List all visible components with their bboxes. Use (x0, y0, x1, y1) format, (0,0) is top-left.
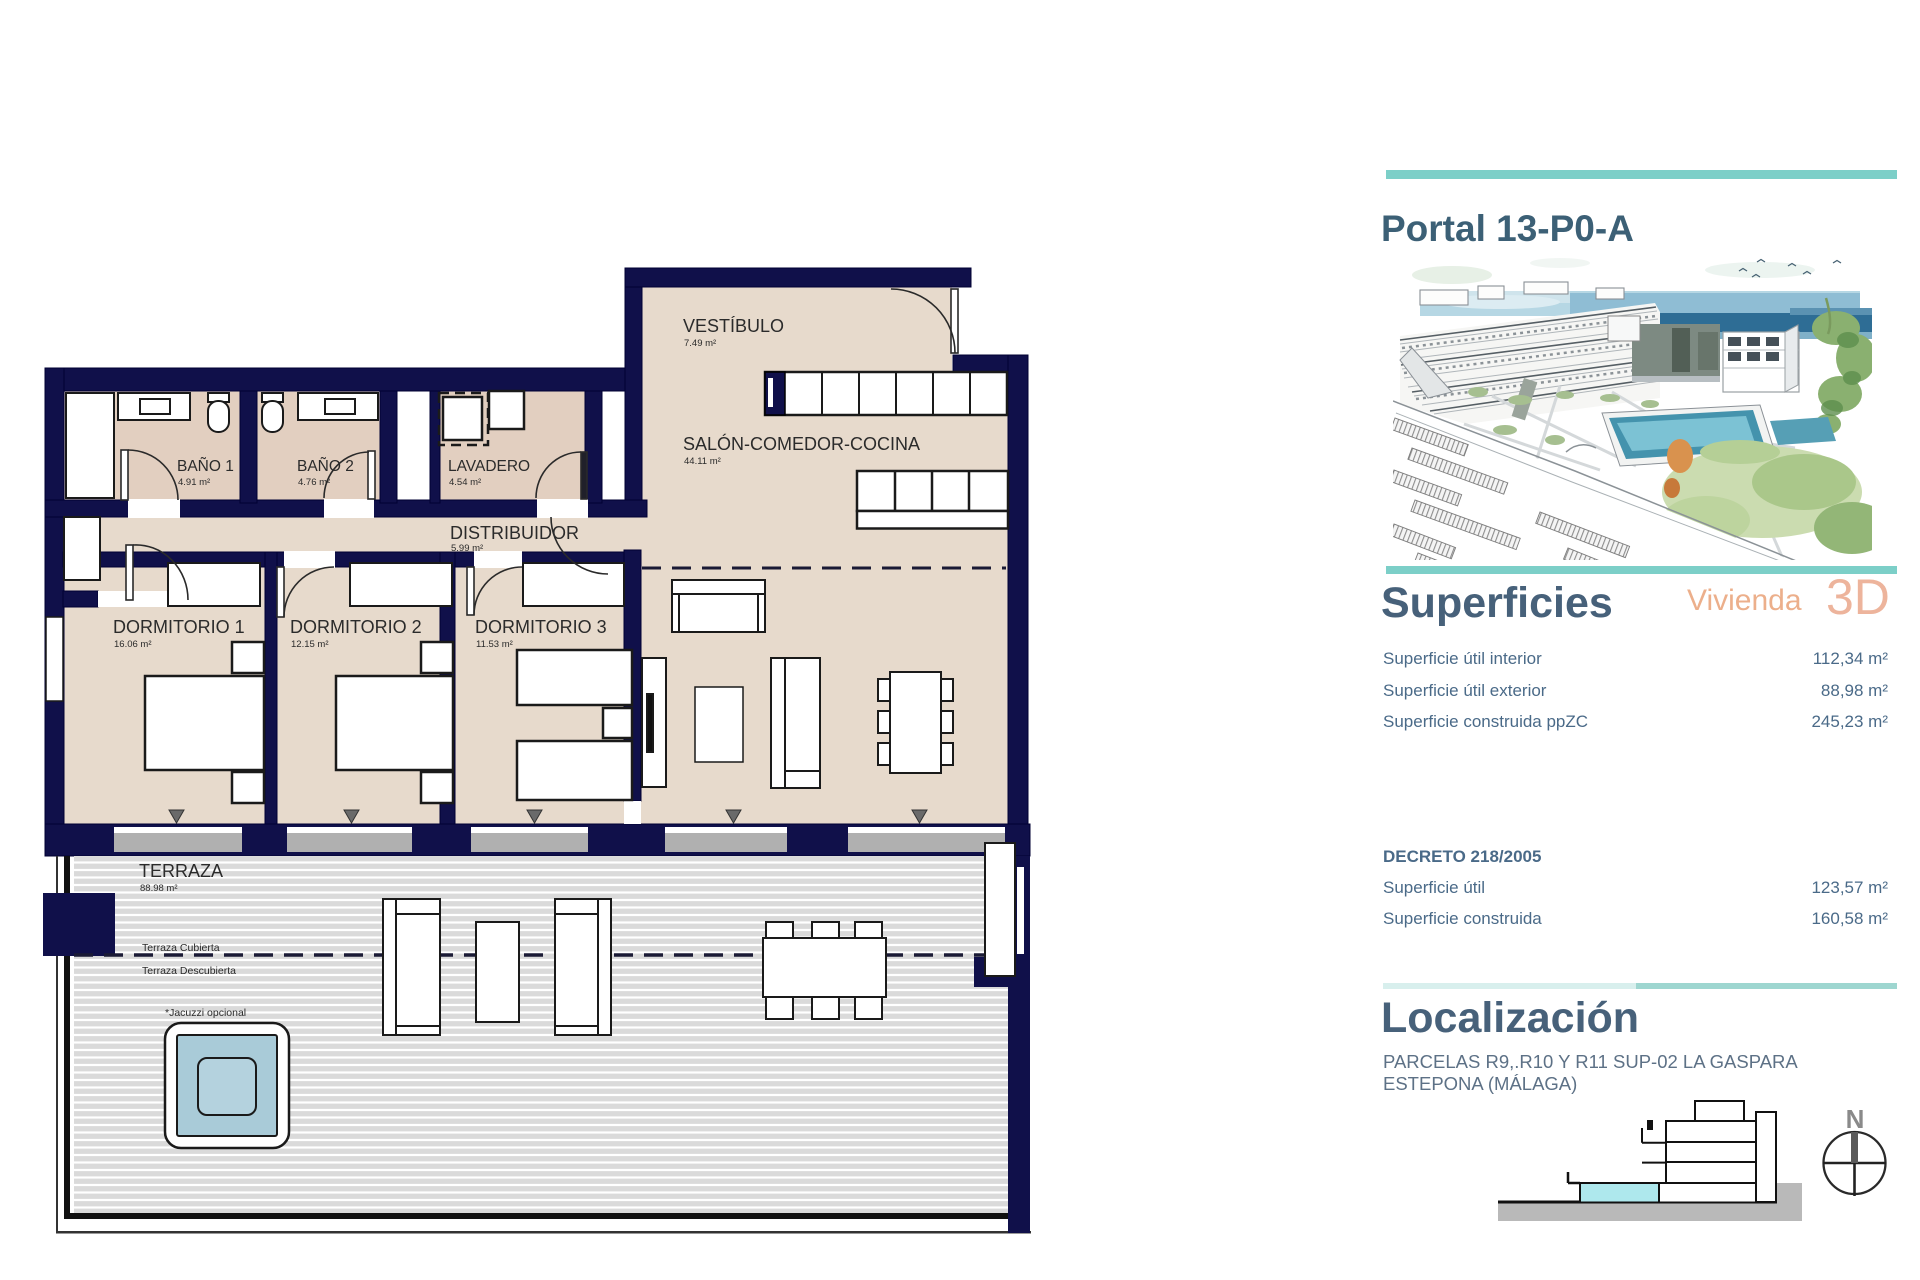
svg-text:Superficie construida ppZC: Superficie construida ppZC (1383, 712, 1588, 731)
svg-text:BAÑO 2: BAÑO 2 (297, 458, 354, 475)
svg-text:*Jacuzzi opcional: *Jacuzzi opcional (165, 1007, 246, 1019)
svg-text:160,58 m²: 160,58 m² (1811, 909, 1888, 928)
svg-text:Terraza Descubierta: Terraza Descubierta (142, 965, 236, 977)
svg-text:TERRAZA: TERRAZA (139, 861, 223, 881)
svg-text:Superficie útil interior: Superficie útil interior (1383, 649, 1542, 668)
svg-text:Vivienda: Vivienda (1687, 584, 1802, 617)
svg-text:ESTEPONA (MÁLAGA): ESTEPONA (MÁLAGA) (1383, 1073, 1577, 1094)
svg-text:Localización: Localización (1381, 994, 1639, 1042)
svg-text:12.15 m²: 12.15 m² (291, 639, 329, 650)
svg-text:N: N (1846, 1104, 1865, 1134)
svg-text:245,23 m²: 245,23 m² (1811, 712, 1888, 731)
svg-text:4.91 m²: 4.91 m² (178, 477, 210, 488)
svg-text:16.06 m²: 16.06 m² (114, 639, 152, 650)
svg-text:5.99 m²: 5.99 m² (451, 543, 483, 554)
svg-text:7.49 m²: 7.49 m² (684, 338, 716, 349)
svg-text:Portal 13-P0-A: Portal 13-P0-A (1381, 208, 1634, 249)
svg-text:Terraza Cubierta: Terraza Cubierta (142, 942, 220, 954)
svg-text:112,34 m²: 112,34 m² (1813, 649, 1889, 668)
svg-text:DORMITORIO 1: DORMITORIO 1 (113, 617, 245, 637)
svg-text:44.11 m²: 44.11 m² (684, 456, 721, 467)
svg-text:SALÓN-COMEDOR-COCINA: SALÓN-COMEDOR-COCINA (683, 433, 920, 454)
svg-text:BAÑO 1: BAÑO 1 (177, 458, 234, 475)
svg-text:11.53 m²: 11.53 m² (476, 639, 513, 650)
svg-text:Superficie construida: Superficie construida (1383, 909, 1542, 928)
svg-text:Superficie útil exterior: Superficie útil exterior (1383, 681, 1547, 700)
svg-text:PARCELAS R9,.R10 Y R11 SUP-02: PARCELAS R9,.R10 Y R11 SUP-02 LA GASPARA (1383, 1051, 1798, 1072)
svg-text:LAVADERO: LAVADERO (448, 458, 530, 475)
svg-text:DORMITORIO 3: DORMITORIO 3 (475, 617, 607, 637)
svg-text:VESTÍBULO: VESTÍBULO (683, 316, 784, 336)
svg-text:123,57 m²: 123,57 m² (1811, 878, 1888, 897)
svg-text:Superficies: Superficies (1381, 579, 1613, 627)
svg-text:88.98 m²: 88.98 m² (140, 883, 178, 894)
svg-text:DISTRIBUIDOR: DISTRIBUIDOR (450, 523, 579, 543)
svg-text:4.76 m²: 4.76 m² (298, 477, 330, 488)
svg-text:Superficie útil: Superficie útil (1383, 878, 1485, 897)
svg-text:3D: 3D (1826, 569, 1890, 625)
svg-text:4.54 m²: 4.54 m² (449, 477, 481, 488)
svg-text:88,98 m²: 88,98 m² (1821, 681, 1888, 700)
svg-text:DORMITORIO 2: DORMITORIO 2 (290, 617, 422, 637)
svg-text:DECRETO 218/2005: DECRETO 218/2005 (1383, 847, 1541, 866)
